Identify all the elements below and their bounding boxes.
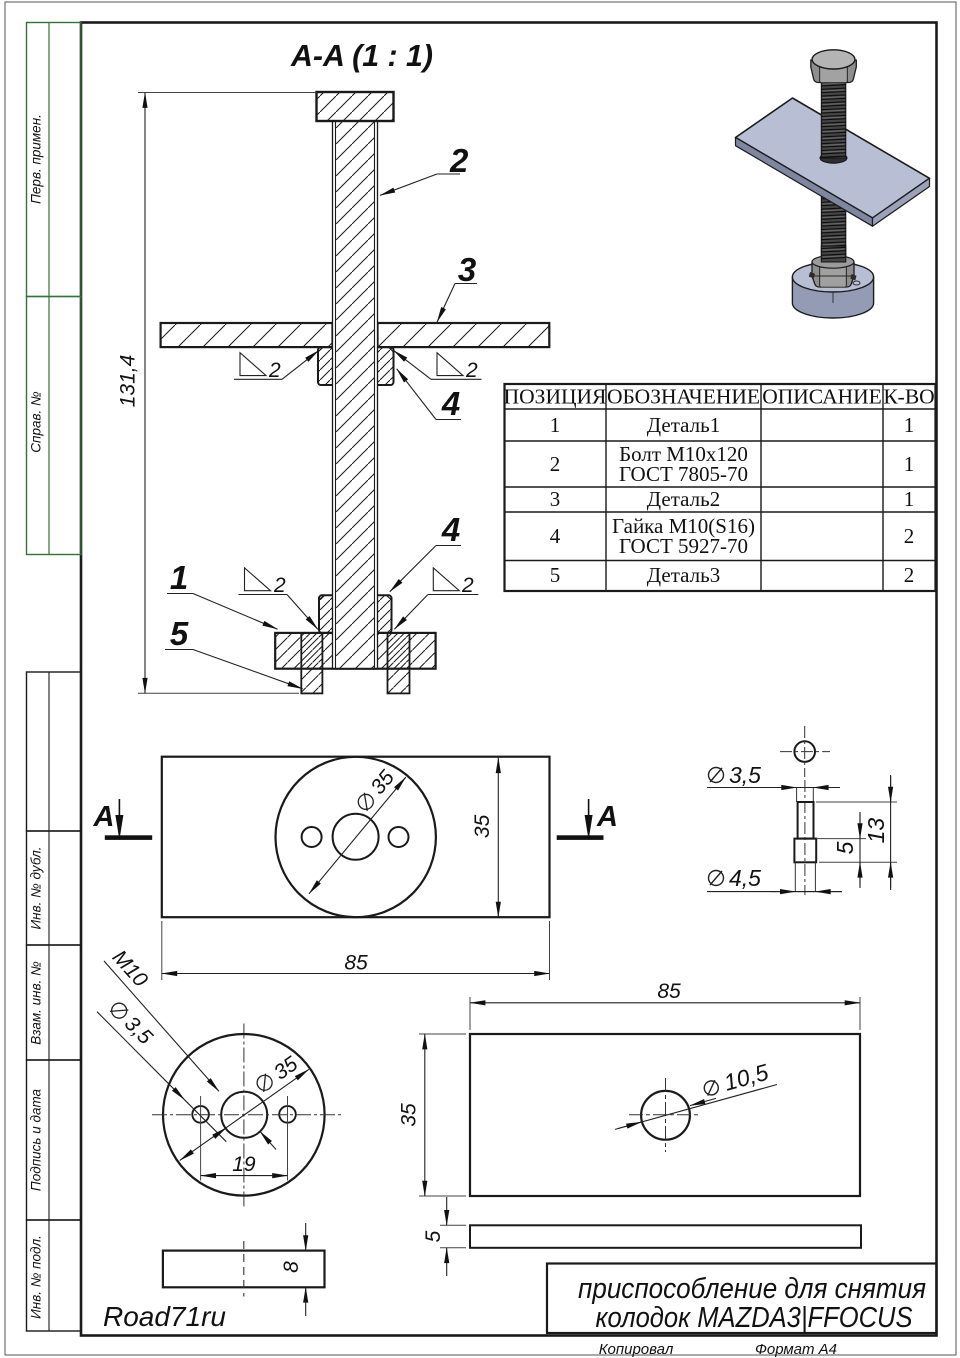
svg-text:3: 3	[458, 251, 476, 288]
svg-text:приспособление для снятия: приспособление для снятия	[578, 1273, 926, 1305]
svg-text:5: 5	[550, 563, 561, 587]
svg-text:1: 1	[904, 413, 915, 437]
svg-text:5: 5	[422, 1230, 445, 1242]
svg-text:35: 35	[398, 1103, 421, 1127]
svg-text:3: 3	[550, 487, 561, 511]
svg-text:Копировал: Копировал	[599, 1341, 674, 1358]
svg-text:131,4: 131,4	[117, 355, 140, 408]
svg-text:Справ. №: Справ. №	[29, 391, 44, 453]
svg-text:2: 2	[268, 359, 281, 382]
svg-text:Взам. инв. №: Взам. инв. №	[29, 961, 44, 1045]
svg-text:ОПИСАНИЕ: ОПИСАНИЕ	[762, 385, 882, 409]
svg-text:A: A	[596, 801, 618, 833]
svg-text:19: 19	[232, 1153, 256, 1176]
svg-text:Инв. № подл.: Инв. № подл.	[29, 1235, 44, 1319]
svg-text:2: 2	[904, 563, 915, 587]
svg-text:4,5: 4,5	[729, 865, 761, 891]
svg-text:35: 35	[471, 814, 494, 838]
svg-text:2: 2	[904, 524, 915, 548]
svg-text:Деталь1: Деталь1	[647, 413, 720, 437]
svg-text:13: 13	[863, 818, 889, 844]
svg-text:2: 2	[550, 452, 561, 476]
svg-text:2: 2	[461, 574, 474, 597]
svg-text:ГОСТ 5927-70: ГОСТ 5927-70	[619, 534, 748, 558]
svg-text:85: 85	[657, 980, 681, 1003]
svg-text:1: 1	[904, 452, 915, 476]
svg-text:Деталь2: Деталь2	[647, 487, 720, 511]
svg-text:A-A (1 : 1): A-A (1 : 1)	[290, 38, 433, 73]
svg-text:4: 4	[441, 511, 460, 548]
svg-text:ГОСТ 7805-70: ГОСТ 7805-70	[619, 462, 748, 486]
svg-text:Формат А4: Формат А4	[755, 1341, 837, 1358]
svg-text:К-ВО: К-ВО	[883, 385, 934, 409]
svg-text:A: A	[93, 801, 115, 833]
svg-text:Деталь3: Деталь3	[647, 563, 720, 587]
svg-text:Подпись и дата: Подпись и дата	[29, 1088, 44, 1191]
svg-text:3,5: 3,5	[729, 762, 761, 788]
svg-text:Перв. примен.: Перв. примен.	[29, 114, 44, 204]
svg-text:1: 1	[170, 559, 188, 596]
svg-text:4: 4	[550, 524, 561, 548]
svg-text:2: 2	[273, 574, 286, 597]
svg-text:85: 85	[344, 952, 368, 975]
svg-text:Инв. № дубл.: Инв. № дубл.	[29, 846, 44, 929]
svg-text:ПОЗИЦИЯ: ПОЗИЦИЯ	[504, 385, 607, 409]
svg-text:5: 5	[170, 615, 189, 652]
svg-text:2: 2	[465, 359, 478, 382]
svg-text:ОБОЗНАЧЕНИЕ: ОБОЗНАЧЕНИЕ	[607, 385, 760, 409]
svg-text:4: 4	[441, 385, 460, 422]
svg-text:5: 5	[832, 841, 858, 854]
svg-text:колодок MAZDA3|FFOCUS: колодок MAZDA3|FFOCUS	[596, 1302, 914, 1334]
svg-text:8: 8	[280, 1261, 303, 1273]
svg-text:1: 1	[550, 413, 561, 437]
svg-text:Road71ru: Road71ru	[103, 1301, 226, 1332]
svg-text:1: 1	[904, 487, 915, 511]
